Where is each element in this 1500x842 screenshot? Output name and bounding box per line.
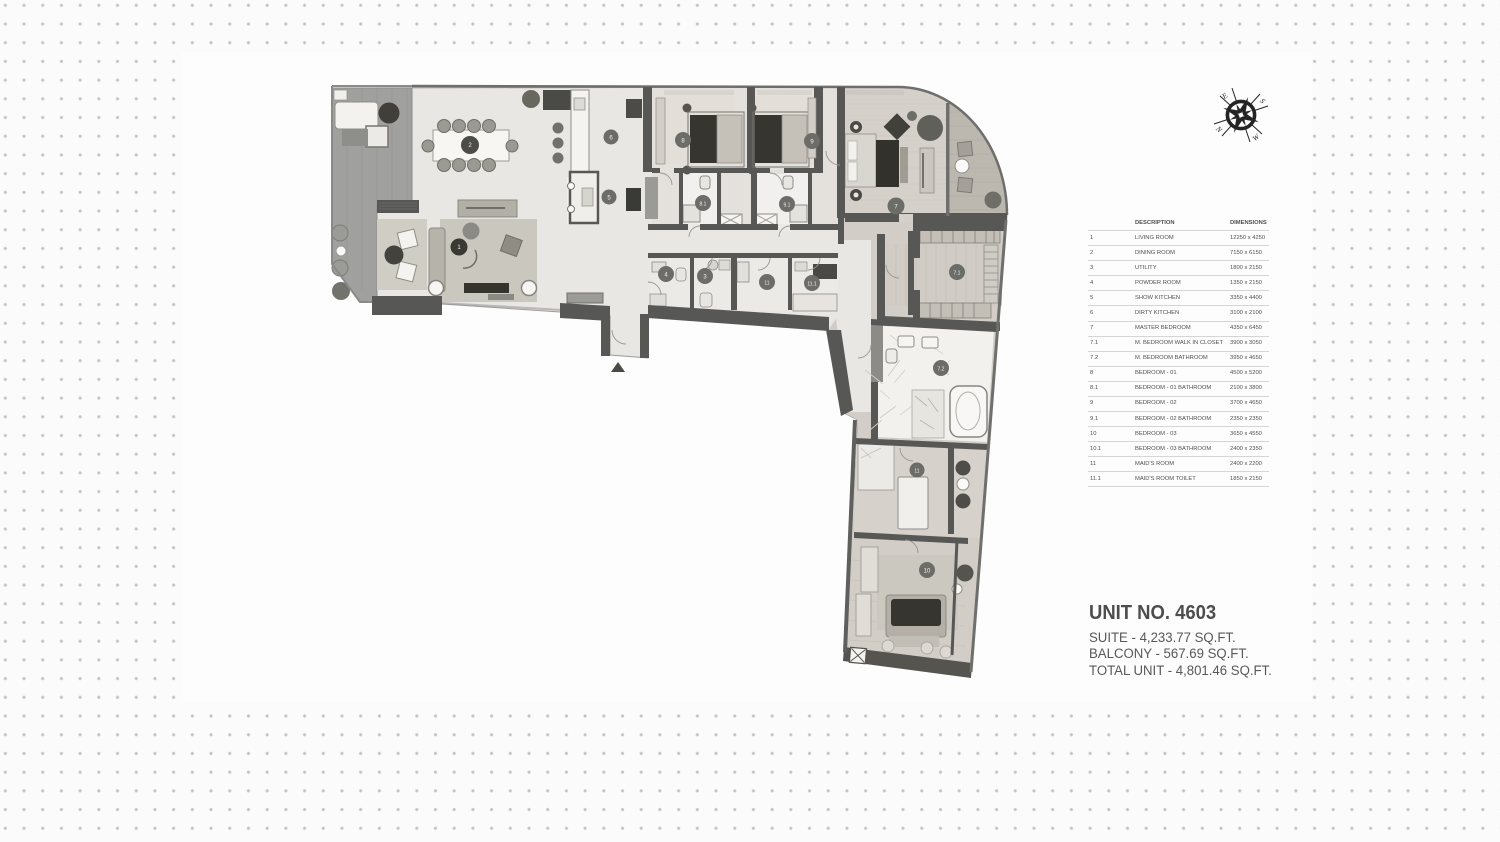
svg-text:S: S [1258, 96, 1267, 105]
svg-text:N: N [1213, 124, 1224, 135]
svg-text:W: W [1251, 132, 1262, 143]
svg-text:10: 10 [924, 568, 931, 574]
svg-text:7.2: 7.2 [938, 366, 945, 372]
svg-text:11: 11 [764, 280, 769, 286]
svg-text:E: E [1219, 91, 1229, 102]
svg-text:7.1: 7.1 [954, 270, 961, 276]
svg-text:11.1: 11.1 [807, 281, 817, 287]
svg-text:9.1: 9.1 [784, 202, 791, 208]
svg-text:8.1: 8.1 [700, 201, 707, 207]
svg-text:11: 11 [914, 468, 919, 474]
